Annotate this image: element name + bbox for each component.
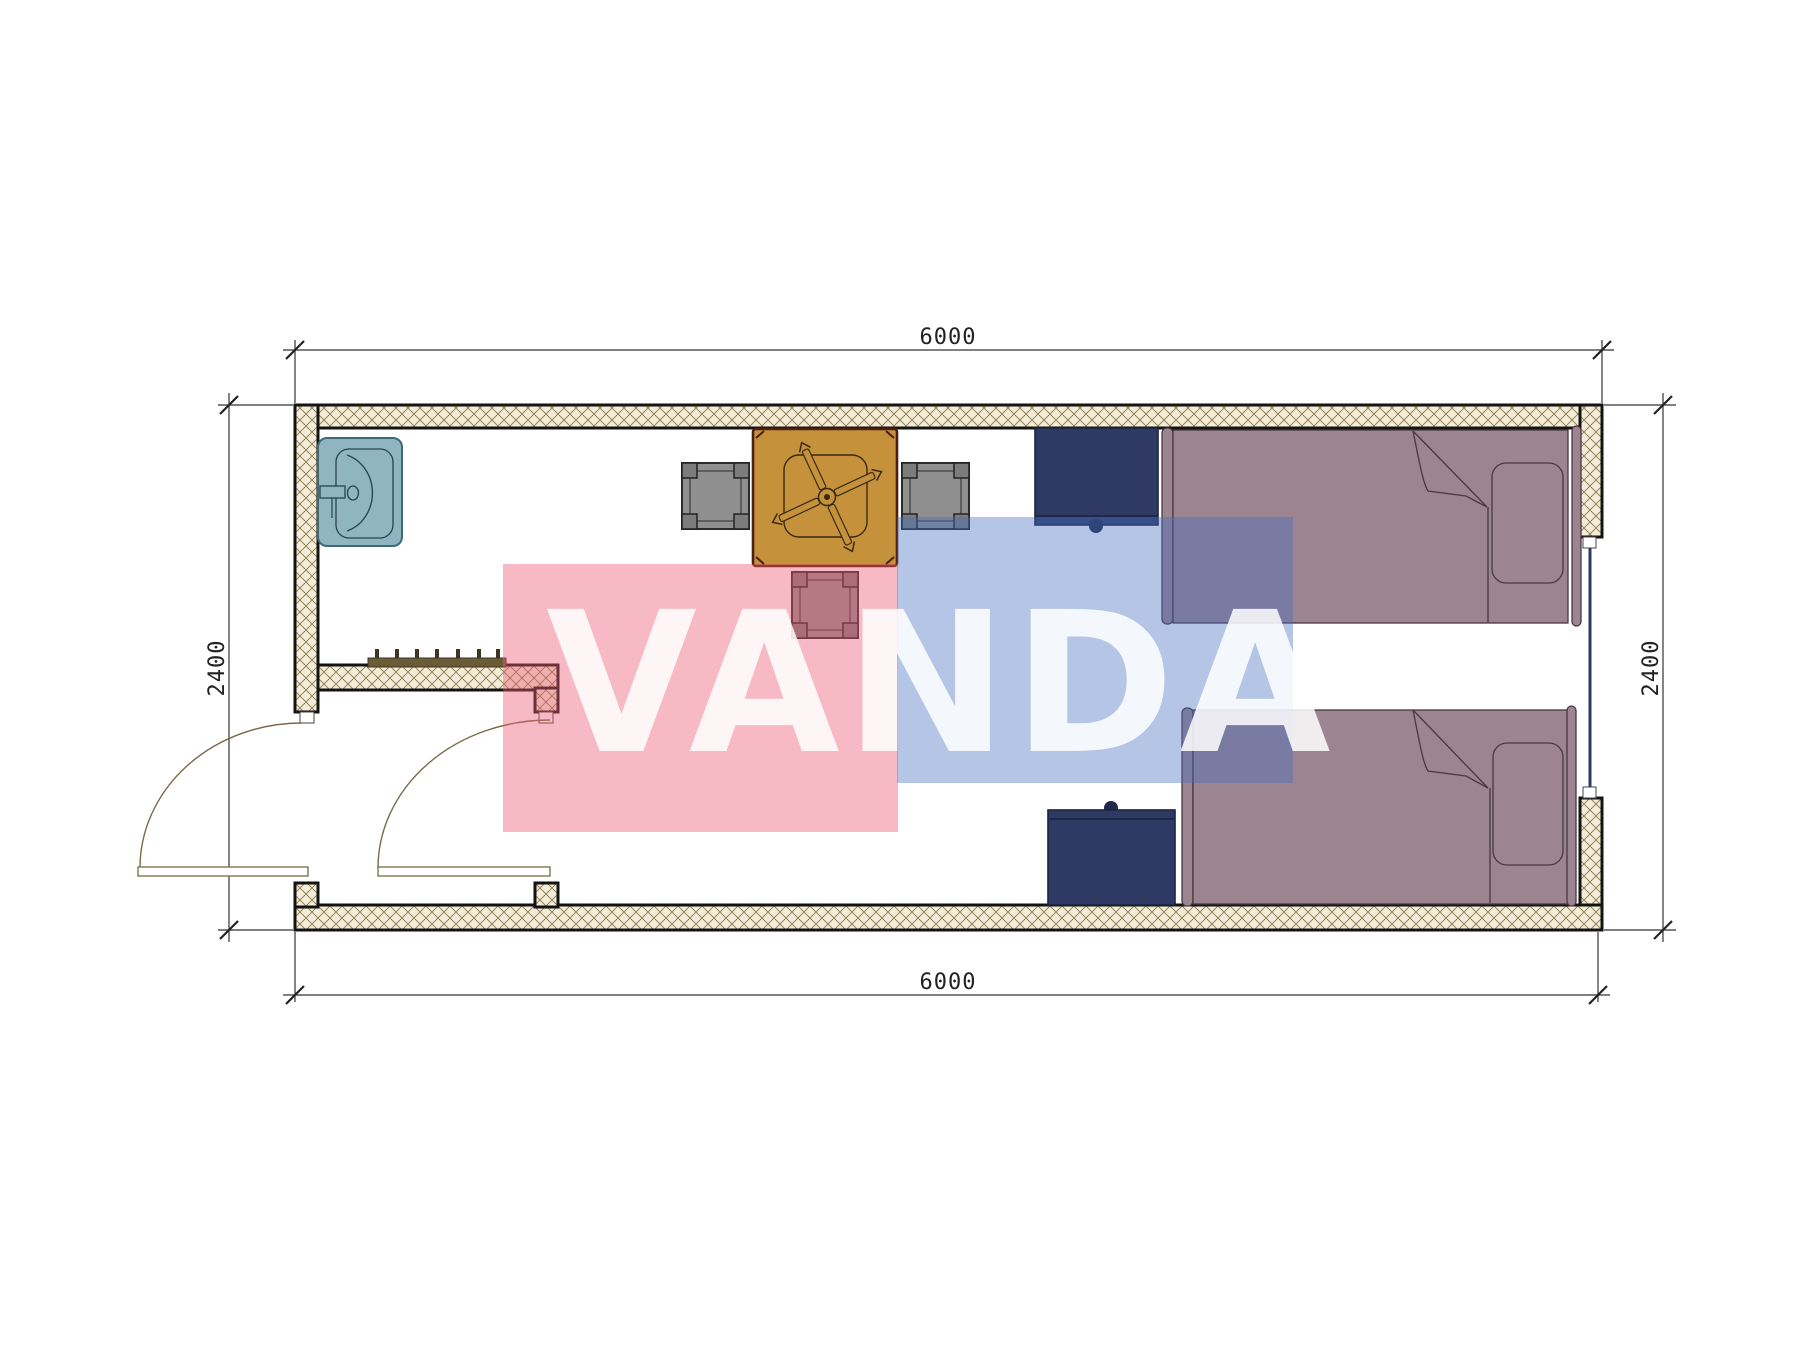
nightstand-body: [1035, 428, 1158, 525]
jamb-cap: [300, 712, 314, 723]
nightstand-body: [1048, 810, 1175, 905]
entry-doors: [138, 720, 550, 876]
chair-post: [682, 514, 697, 529]
shower-sink: [318, 438, 402, 546]
door-jamb-bottom-left: [295, 883, 318, 907]
wall-top: [295, 405, 1602, 428]
door-leaf-right: [378, 867, 550, 876]
chair-post: [682, 463, 697, 478]
chair-post: [902, 463, 917, 478]
radiator-bar: [368, 658, 506, 667]
wall-left: [295, 405, 318, 712]
chair-post: [734, 463, 749, 478]
nightstand-bottom: [1048, 801, 1175, 905]
watermark-brand-text: VANDA: [546, 586, 1336, 781]
floor-plan-page: 6000 6000 2400 2400: [0, 0, 1800, 1350]
wall-right-top: [1580, 405, 1602, 537]
dim-label-right: 2400: [1639, 640, 1664, 697]
dim-label-bottom: 6000: [920, 970, 977, 995]
ceiling-fan-table: [747, 417, 906, 576]
door-jamb-bottom-mid: [535, 883, 558, 907]
bed-footboard: [1567, 706, 1576, 906]
wall-bottom: [295, 905, 1602, 930]
chair-post: [954, 463, 969, 478]
coat-radiator: [368, 649, 506, 667]
bed-footboard: [1572, 426, 1581, 626]
jamb-cap: [1583, 537, 1596, 548]
dim-label-top: 6000: [920, 325, 977, 350]
chair-post: [734, 514, 749, 529]
jamb-cap: [1583, 787, 1596, 798]
chair-left: [682, 463, 749, 529]
sink-faucet: [320, 486, 345, 498]
door-swing-arc-left: [140, 723, 302, 868]
dim-label-left: 2400: [205, 640, 230, 697]
door-leaf-left: [138, 867, 308, 876]
